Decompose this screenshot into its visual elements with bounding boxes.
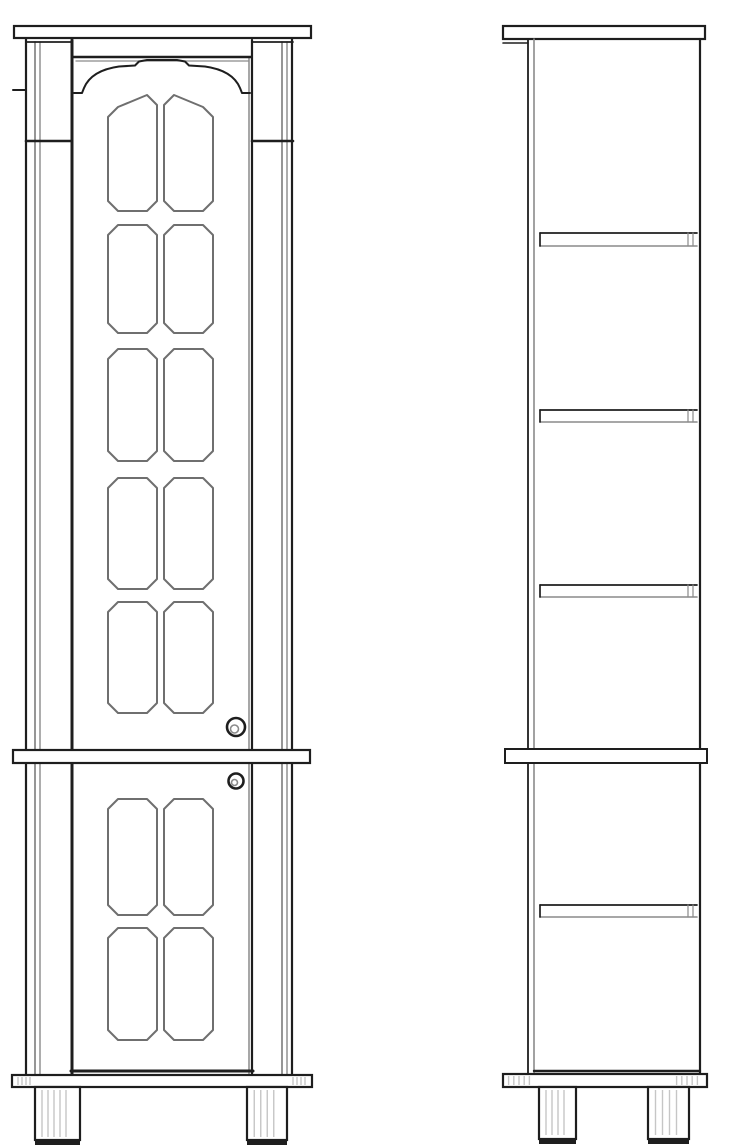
front-elevation-view [12, 26, 312, 1145]
left-foot-base [35, 1139, 80, 1145]
upper-panel-r3-right [164, 349, 213, 461]
top-board [503, 26, 705, 39]
lower-panel-r2-right [164, 928, 213, 1040]
side-back-foot-base [648, 1138, 689, 1144]
upper-door-knob-center [231, 725, 239, 733]
middle-rail [13, 750, 310, 763]
drawing-sheet [0, 0, 745, 1146]
drawing-canvas [0, 0, 745, 1146]
upper-panel-r1-left [108, 95, 157, 211]
upper-panel-r5-right [164, 602, 213, 713]
lower-door-knob [229, 774, 244, 789]
upper-panel-r2-right [164, 225, 213, 333]
middle-rail-side [505, 749, 707, 763]
upper-panel-r3-left [108, 349, 157, 461]
lower-panel-r1-left [108, 799, 157, 915]
plinth-rail [12, 1075, 312, 1087]
side-front-foot-base [539, 1138, 576, 1144]
upper-panel-r5-left [108, 602, 157, 713]
lower-panel-r2-left [108, 928, 157, 1040]
right-foot-base [247, 1139, 287, 1145]
upper-panel-r2-left [108, 225, 157, 333]
lower-door-knob-center [232, 780, 238, 786]
upper-panel-r1-right [164, 95, 213, 211]
door-arch [74, 60, 250, 93]
side-back-foot [648, 1087, 689, 1139]
upper-panel-r4-left [108, 478, 157, 589]
side-elevation-view [503, 26, 707, 1144]
cornice-board [14, 26, 311, 38]
upper-panel-r4-right [164, 478, 213, 589]
lower-panel-r1-right [164, 799, 213, 915]
